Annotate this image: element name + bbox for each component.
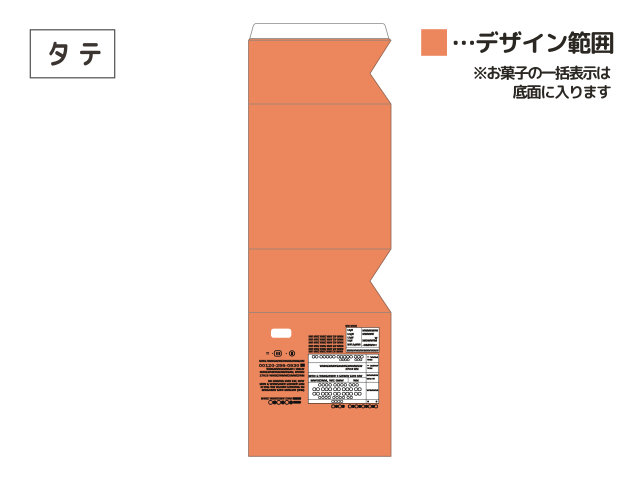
svg-text:M0MWM: M0MWM — [362, 340, 377, 343]
svg-text:0.0gW: 0.0gW — [347, 334, 354, 336]
svg-text:MW0 E WM0EWMW 0 EWMW EW0 MW: MW0 E WM0EWMW 0 EWMW EW0 MW — [309, 374, 363, 378]
svg-text:WM: WM — [353, 379, 358, 382]
svg-text:MWE0MW EW0 MWEW0 (WM): MWE0MW EW0 MWEW0 (WM) — [262, 389, 305, 392]
svg-text:WM: WM — [367, 368, 372, 370]
svg-text:MWM0W: MWM0W — [362, 333, 374, 336]
svg-text:270C6 WM0EIWMWE0MWEIWM: 270C6 WM0EIWMWE0MWEIWM — [260, 375, 305, 378]
svg-text:MWMW: MWMW — [367, 375, 380, 377]
svg-text:MW0EWM, WE 0MW: MW0EWM, WE 0MW — [311, 379, 345, 382]
svg-text:270C6 WM: 270C6 WM — [346, 368, 359, 371]
svg-text:0.0gW: 0.0gW — [347, 340, 353, 342]
svg-text:MWMWM0MW0MWMW0MW: MWMWM0MW0MWMW0MW — [347, 348, 379, 352]
svg-text:MW0.0gWM0: MW0.0gWM0 — [347, 345, 361, 347]
svg-text:MWMWM0W: MWMWM0W — [362, 329, 378, 332]
svg-text:MW0 MWE WM0E WMW EW 0MWM: MW0 MWE WM0E WMW EW 0MWM — [309, 350, 343, 354]
svg-text:* WM: * WM — [367, 357, 378, 359]
svg-text:-0MW0=: -0MW0= — [362, 344, 378, 347]
svg-text:WM: WM — [367, 360, 372, 362]
svg-text:WM W: WM W — [367, 379, 376, 381]
svg-text:WMWM: WMWM — [367, 390, 379, 392]
svg-text:0.0gW: 0.0gW — [347, 330, 353, 332]
svg-text:0.0gW: 0.0gW — [347, 338, 354, 340]
